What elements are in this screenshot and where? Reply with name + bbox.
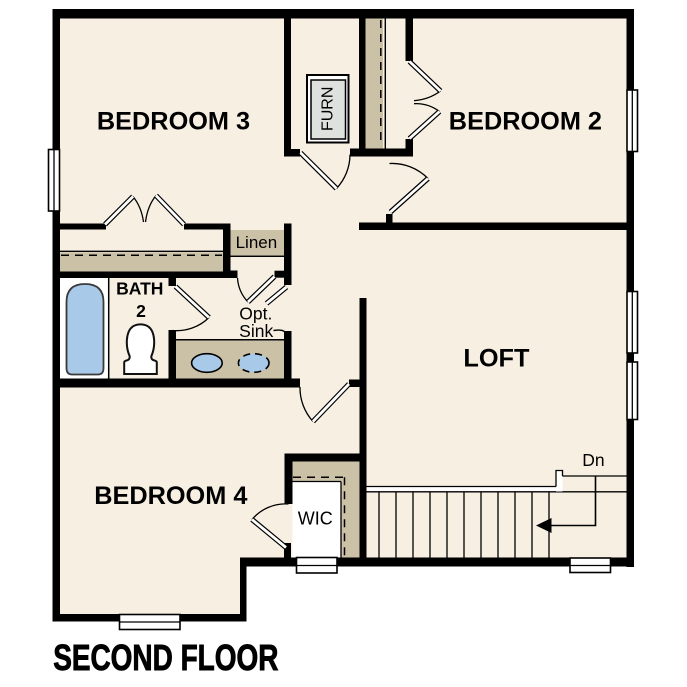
svg-text:BEDROOM 4: BEDROOM 4 bbox=[94, 482, 247, 510]
svg-text:Sink: Sink bbox=[239, 321, 273, 341]
svg-text:BEDROOM 3: BEDROOM 3 bbox=[97, 108, 250, 136]
svg-text:FURN: FURN bbox=[320, 87, 337, 131]
svg-text:LOFT: LOFT bbox=[463, 345, 530, 373]
svg-text:BEDROOM 2: BEDROOM 2 bbox=[449, 108, 602, 136]
svg-text:SECOND FLOOR: SECOND FLOOR bbox=[53, 637, 278, 677]
svg-text:Dn: Dn bbox=[582, 450, 604, 470]
svg-text:WIC: WIC bbox=[298, 509, 333, 529]
svg-text:2: 2 bbox=[136, 301, 146, 321]
svg-text:BATH: BATH bbox=[116, 279, 163, 299]
svg-text:Linen: Linen bbox=[236, 233, 278, 252]
